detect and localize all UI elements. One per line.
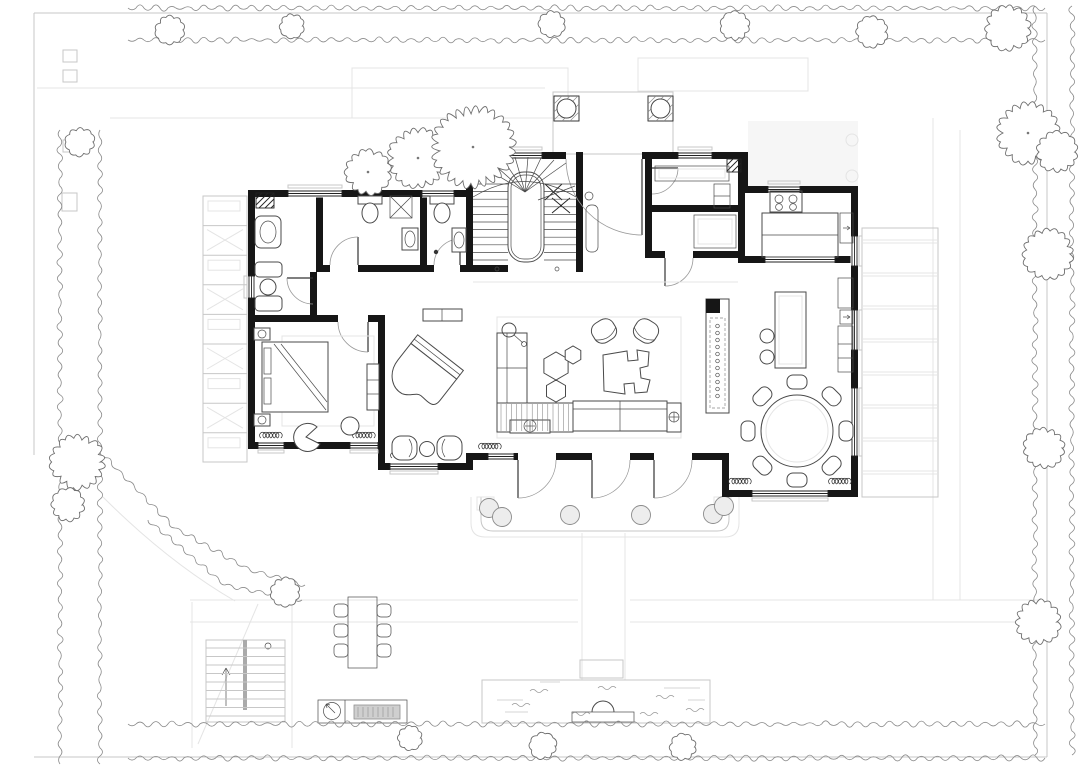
nook-table xyxy=(420,442,435,457)
dining-chair xyxy=(787,473,807,487)
side-table xyxy=(341,417,359,435)
toilet-bowl xyxy=(362,203,378,223)
wall-segment xyxy=(358,265,434,272)
dining-chair-seat xyxy=(787,375,807,389)
console-table xyxy=(423,309,462,321)
floor-plan-drawing: Ground-floor plan of a villa with landsc… xyxy=(0,0,1080,770)
wall-segment xyxy=(576,152,583,272)
tree-trunk xyxy=(472,146,475,149)
wall-segment xyxy=(645,251,665,258)
floor-drain xyxy=(434,250,438,254)
tv-cabinet xyxy=(367,364,379,410)
wall-segment xyxy=(800,186,858,193)
dining-chair xyxy=(741,421,755,441)
wall-segment xyxy=(316,190,323,272)
wall-segment xyxy=(652,205,738,212)
tree-trunk xyxy=(417,157,420,160)
hexagonal-coffee-table xyxy=(565,346,581,364)
dining-chair-seat xyxy=(741,421,755,441)
wall-segment xyxy=(722,453,729,497)
wall-segment xyxy=(316,265,330,272)
wall-segment xyxy=(645,159,652,258)
floor-plan-page: Ground-floor plan of a villa with landsc… xyxy=(0,0,1080,770)
wall-segment xyxy=(473,265,508,272)
dining-chair-seat xyxy=(839,421,853,441)
dining-chair xyxy=(839,421,853,441)
wall-segment xyxy=(248,315,338,322)
wall-segment xyxy=(851,350,858,388)
hexagonal-coffee-table xyxy=(547,380,566,402)
wall-segment xyxy=(248,442,258,449)
terrace-column xyxy=(715,497,734,516)
wall-segment xyxy=(741,256,765,263)
wall-segment xyxy=(514,453,518,460)
wardrobe-unit xyxy=(255,262,282,277)
dining-chair-seat xyxy=(787,473,807,487)
wall-segment xyxy=(438,463,472,470)
wall-segment xyxy=(828,490,858,497)
rear-courtyard xyxy=(748,121,858,191)
wall-segment xyxy=(642,152,678,159)
wall-segment xyxy=(420,190,427,272)
bar-stool xyxy=(760,329,774,343)
wall-segment xyxy=(248,197,255,276)
terrace-column xyxy=(632,506,651,525)
paper-background xyxy=(0,0,1080,770)
wall-segment xyxy=(851,193,858,236)
wall-segment xyxy=(630,453,654,460)
wall-segment xyxy=(851,266,858,310)
wall-segment xyxy=(748,186,768,193)
wall-segment xyxy=(542,152,566,159)
tree-canopy xyxy=(279,14,304,39)
tree-trunk xyxy=(1027,132,1030,135)
porch-column-shaft xyxy=(557,99,576,118)
double-bed xyxy=(262,342,328,412)
lounge-chair xyxy=(437,436,462,460)
toilet-bowl xyxy=(434,203,450,223)
porch-column-shaft xyxy=(651,99,670,118)
closet-room xyxy=(255,216,282,311)
terrace-column xyxy=(561,506,580,525)
bar-stool xyxy=(760,350,774,364)
tree-trunk xyxy=(367,171,370,174)
wardrobe-unit xyxy=(255,296,282,311)
wall-segment xyxy=(310,272,317,322)
lounge-chair xyxy=(392,436,417,460)
wall-segment xyxy=(712,152,741,159)
wall-segment xyxy=(556,453,592,460)
wall-segment xyxy=(472,453,488,460)
dining-chair xyxy=(787,375,807,389)
terrace-column xyxy=(493,508,512,527)
wall-segment xyxy=(738,159,745,263)
wall-segment xyxy=(385,463,390,470)
sideboard-pier xyxy=(706,299,720,313)
wardrobe-mirror xyxy=(260,279,276,295)
wall-segment xyxy=(692,453,722,460)
wall-segment xyxy=(693,251,738,258)
wall-segment xyxy=(460,265,466,272)
